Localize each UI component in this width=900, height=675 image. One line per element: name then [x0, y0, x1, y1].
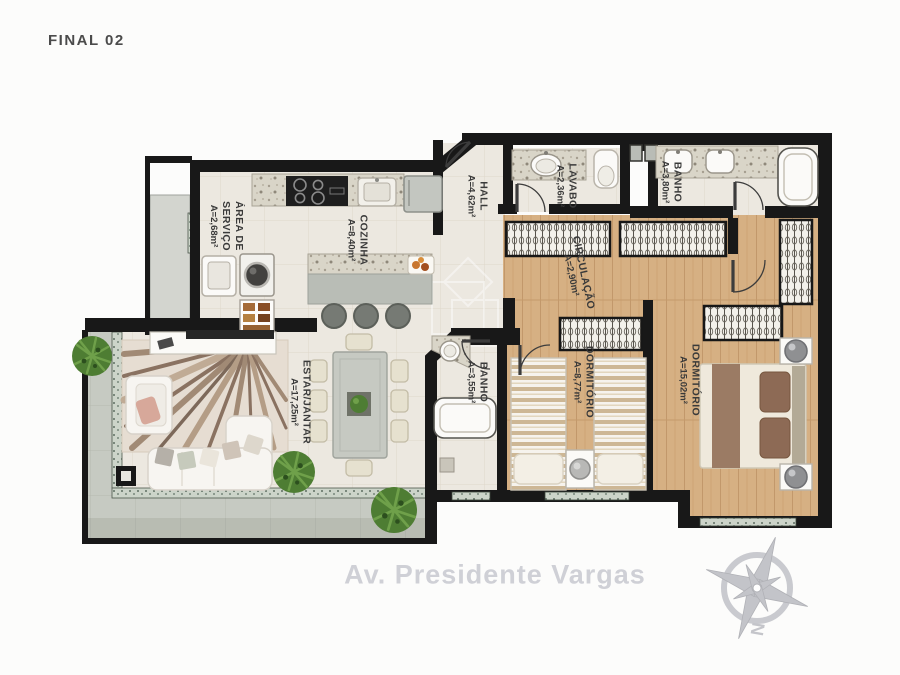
floor-plan-page: FINAL 02 ÁREA DE SERVIÇO A=2,68m² COZINH… [0, 0, 900, 675]
shower-drain [440, 458, 454, 472]
sofa-pillow [154, 447, 174, 467]
room-label-estar: ESTAR/JANTAR A=17,25m² [288, 360, 313, 444]
centerpiece-plant [350, 395, 368, 413]
room-area: A=4,62m² [465, 175, 477, 218]
room-name: BANHO [476, 361, 489, 404]
tv [186, 330, 274, 339]
bath2-window [452, 492, 490, 500]
room-name: ÁREA DE SERVIÇO [219, 195, 245, 257]
stool [354, 304, 378, 328]
room-area: A=17,25m² [288, 360, 300, 444]
room-label-hall: HALL A=4,62m² [465, 175, 490, 218]
plan-title: FINAL 02 [48, 32, 125, 49]
room-label-dorm1: DORMITÓRIO A=8,77m² [571, 346, 596, 418]
sofa-pillow [177, 451, 197, 471]
room-area: A=2,36m² [554, 163, 566, 208]
headboard [792, 366, 805, 466]
bed-pillow [760, 418, 790, 458]
wardrobe-hall-2 [620, 222, 726, 256]
pillow [597, 454, 643, 484]
lamp [785, 340, 807, 362]
room-area: A=8,77m² [571, 346, 583, 418]
kitchen-faucet [375, 178, 379, 182]
living-furniture [122, 330, 408, 490]
room-name: DORMITÓRIO [582, 346, 595, 418]
room-area: A=3,55m² [465, 361, 477, 404]
room-label-banho2: BANHO A=3,55m² [465, 361, 490, 404]
room-area: A=3,80m² [659, 161, 671, 204]
wardrobe-bedroom2-side [780, 220, 812, 304]
bedroom2-window [700, 518, 796, 526]
terrace-glass-left [112, 332, 122, 488]
room-name: HALL [476, 175, 489, 218]
lamp [785, 466, 807, 488]
room-label-cozinha: COZINHA A=8,40m² [345, 215, 370, 266]
room-area: A=8,40m² [345, 215, 357, 266]
bed-runner [712, 364, 740, 468]
room-name: COZINHA [356, 215, 369, 266]
room-label-banho1: BANHO A=3,80m² [659, 161, 684, 204]
room-name: ESTAR/JANTAR [299, 360, 312, 444]
room-name: BANHO [670, 161, 683, 204]
room-label-lavabo: LAVABO A=2,36m² [554, 163, 579, 208]
bedroom1-window [545, 492, 629, 500]
stool [386, 304, 410, 328]
island-body [308, 274, 432, 304]
compass-rose [688, 519, 826, 657]
lamp [570, 459, 590, 479]
street-name: Av. Presidente Vargas [344, 560, 646, 591]
room-label-servico: ÁREA DE SERVIÇO A=2,68m² [207, 195, 245, 257]
bedroom2-floor-ext [690, 490, 820, 518]
pillow [514, 454, 563, 484]
terrace-plant-bottom [371, 487, 417, 533]
room-name: LAVABO [565, 163, 578, 208]
hall-floor [437, 143, 505, 345]
room-label-dorm2: DORMITÓRIO A=15,02m² [677, 344, 702, 416]
bed-pillow [760, 372, 790, 412]
stool [322, 304, 346, 328]
service-shaft [150, 195, 190, 335]
room-area: A=2,68m² [207, 195, 219, 257]
sofa-pillow [222, 440, 242, 460]
room-area: A=15,02m² [677, 344, 689, 416]
wardrobe-bedroom2 [704, 306, 782, 340]
terrace-plant-top [72, 336, 112, 376]
living-plant [273, 451, 315, 493]
room-name: DORMITÓRIO [688, 344, 701, 416]
